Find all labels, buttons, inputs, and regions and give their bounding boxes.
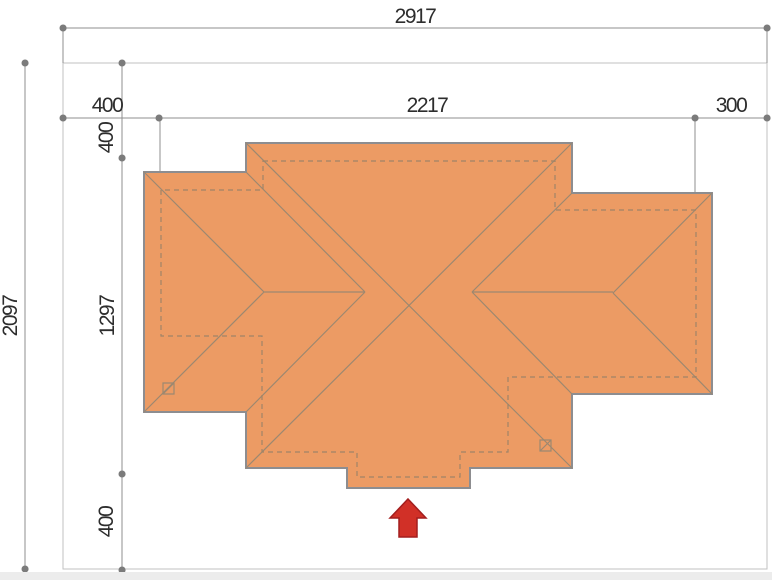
roof-plan-svg: 2917 400 2217 300 2097 400 1297 400 (0, 0, 772, 580)
overall-height-dimension-label: 2097 (0, 295, 22, 337)
height-segment-top-label: 400 (95, 122, 118, 153)
width-segment-middle-label: 2217 (407, 94, 449, 117)
roof-outline (144, 143, 712, 488)
height-segment-bottom-label: 400 (95, 506, 118, 537)
height-segment-middle-label: 1297 (96, 295, 119, 337)
overall-width-dimension-label: 2917 (395, 5, 437, 28)
footer-strip (0, 572, 772, 580)
width-segment-left-label: 400 (92, 94, 123, 117)
entrance-arrow-icon (390, 499, 426, 537)
roof-plan-canvas: 2917 400 2217 300 2097 400 1297 400 (0, 0, 772, 580)
width-segment-right-label: 300 (716, 94, 747, 117)
